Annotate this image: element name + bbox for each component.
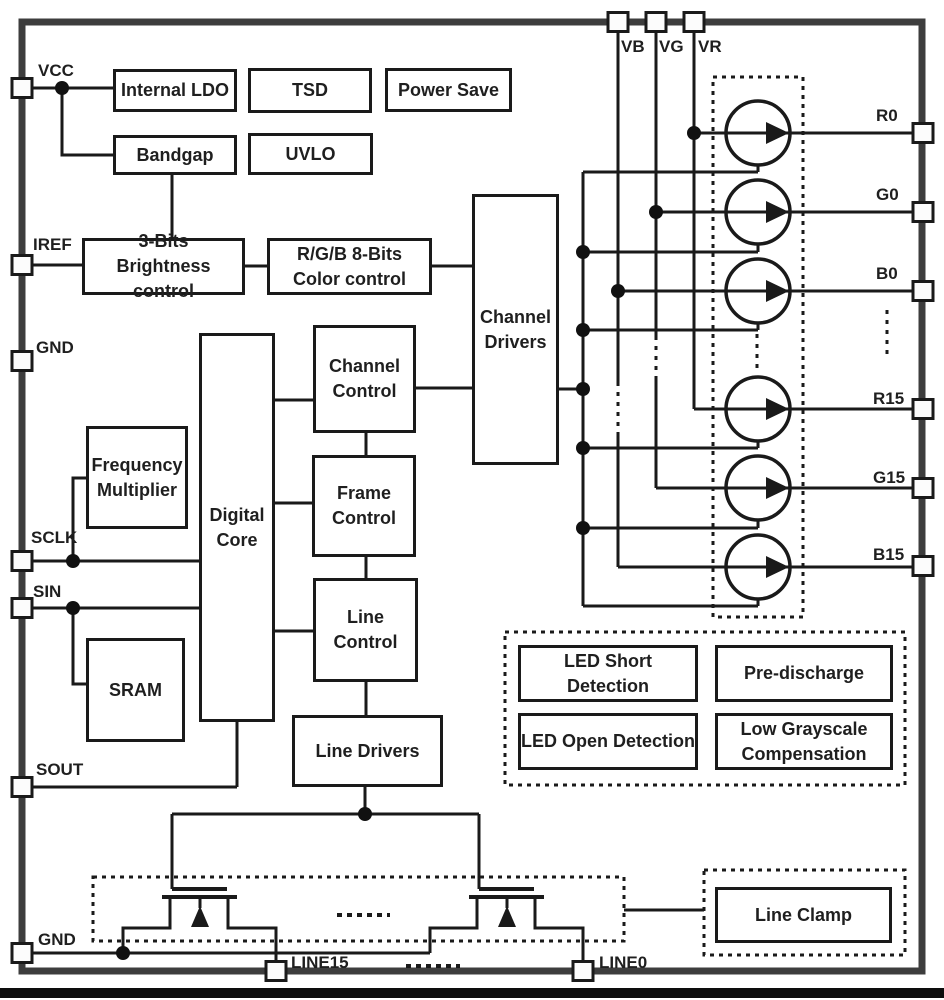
block-bandgap: Bandgap	[113, 135, 237, 175]
pin-label-vr: VR	[698, 38, 722, 55]
mosfet-body-arrow	[191, 906, 209, 927]
block-uvlo: UVLO	[248, 133, 373, 175]
mosfet-line0	[430, 889, 583, 962]
block-brightness-control: 3-Bits Brightness control	[82, 238, 245, 295]
vcc-wire	[31, 88, 113, 155]
pin-label-b0: B0	[876, 265, 898, 282]
pin-label-r0: R0	[876, 107, 898, 124]
current-source-array	[618, 101, 914, 599]
pad-sclk	[12, 552, 32, 571]
ctl-branch-b0	[583, 323, 758, 330]
pin-label-r15: R15	[873, 390, 904, 407]
block-low-grayscale-compensation: Low Grayscale Compensation	[715, 713, 893, 770]
block-line-drivers: Line Drivers	[292, 715, 443, 787]
block-line-clamp: Line Clamp	[715, 887, 892, 943]
pin-label-sin: SIN	[33, 583, 61, 600]
pad-g15	[913, 479, 933, 498]
pad-vr	[684, 13, 704, 32]
pin-label-b15: B15	[873, 546, 904, 563]
pin-label-line0: LINE0	[599, 954, 647, 971]
block-tsd: TSD	[248, 68, 372, 113]
block-pre-discharge: Pre-discharge	[715, 645, 893, 702]
pin-label-vb: VB	[621, 38, 645, 55]
ctl-branch-r15	[583, 441, 758, 448]
block-frame-control: Frame Control	[312, 455, 416, 557]
block-line-control: Line Control	[313, 578, 418, 682]
pin-label-g0: G0	[876, 186, 899, 203]
linedrivers-gate-wire	[172, 787, 479, 889]
ctl-branch-b15	[583, 599, 758, 606]
ctl-branch-r0	[583, 165, 758, 172]
pad-iref	[12, 256, 32, 275]
pad-gnd-upper	[12, 352, 32, 371]
block-led-short-detection: LED Short Detection	[518, 645, 698, 702]
block-power-save: Power Save	[385, 68, 512, 112]
block-frequency-multiplier: Frequency Multiplier	[86, 426, 188, 529]
pad-sin	[12, 599, 32, 618]
pad-r15	[913, 400, 933, 419]
pin-label-sout: SOUT	[36, 761, 83, 778]
block-sram: SRAM	[86, 638, 185, 742]
block-led-open-detection: LED Open Detection	[518, 713, 698, 770]
block-channel-drivers: Channel Drivers	[472, 194, 559, 465]
block-color-control: R/G/B 8-Bits Color control	[267, 238, 432, 295]
pin-label-gnd-upper: GND	[36, 339, 74, 356]
pad-line0	[573, 962, 593, 981]
pin-label-vg: VG	[659, 38, 684, 55]
pad-vb	[608, 13, 628, 32]
pin-label-line15: LINE15	[291, 954, 349, 971]
block-digital-core: Digital Core	[199, 333, 275, 722]
pad-vg	[646, 13, 666, 32]
pin-label-sclk: SCLK	[31, 529, 77, 546]
pin-label-gnd-lower: GND	[38, 931, 76, 948]
pad-r0	[913, 124, 933, 143]
mosfet-line15	[123, 889, 276, 962]
pad-line15	[266, 962, 286, 981]
pad-sout	[12, 778, 32, 797]
block-internal-ldo: Internal LDO	[113, 69, 237, 112]
pad-b15	[913, 557, 933, 576]
pin-label-iref: IREF	[33, 236, 72, 253]
pad-vcc	[12, 79, 32, 98]
ctl-branch-g0	[583, 244, 758, 252]
mosfet-body-arrow	[498, 906, 516, 927]
page-edge-bar	[0, 988, 944, 998]
pad-gnd-lower	[12, 944, 32, 963]
ctl-branch-g15	[583, 520, 758, 528]
pin-label-vcc: VCC	[38, 62, 74, 79]
pin-label-g15: G15	[873, 469, 905, 486]
pad-g0	[913, 203, 933, 222]
pad-b0	[913, 282, 933, 301]
block-channel-control: Channel Control	[313, 325, 416, 433]
block-diagram: Internal LDO TSD Power Save Bandgap UVLO…	[0, 0, 944, 1000]
